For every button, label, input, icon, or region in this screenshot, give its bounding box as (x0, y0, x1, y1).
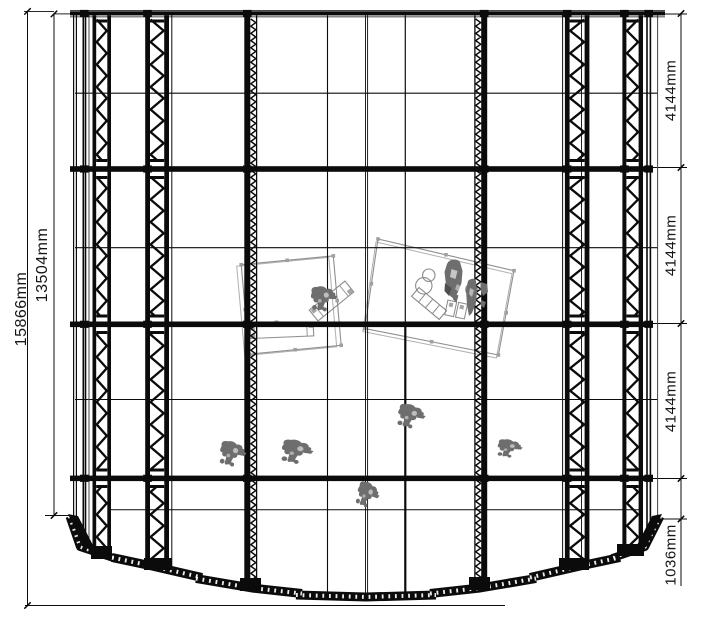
svg-text:4144mm: 4144mm (663, 215, 680, 276)
svg-text:13504mm: 13504mm (34, 228, 51, 303)
svg-text:4144mm: 4144mm (663, 60, 680, 121)
svg-text:15866mm: 15866mm (13, 272, 30, 347)
svg-text:4144mm: 4144mm (663, 371, 680, 432)
svg-text:1036mm: 1036mm (663, 524, 680, 585)
